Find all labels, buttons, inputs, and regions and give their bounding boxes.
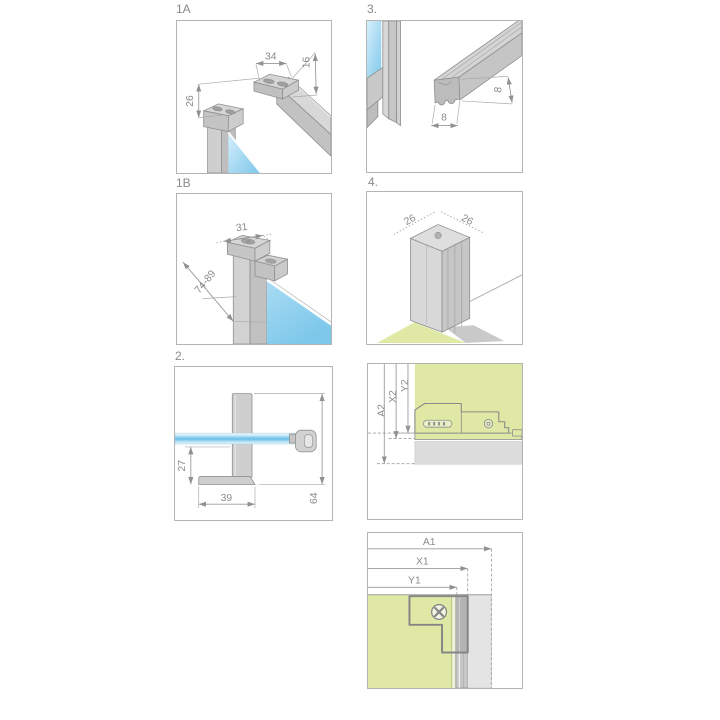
glass-bar [175,433,309,444]
diagram-wall-measure-top: A2 X2 Y2 [368,364,522,519]
dim-x1-label: X1 [416,557,429,568]
dim-side-b-label: 26 [459,213,475,228]
dim-bar-width-label: 34 [265,51,277,62]
screw-icon [484,419,492,427]
dim-profile-width-label: 8 [441,113,447,124]
dim-wall-offset-label: 26 [185,95,196,107]
panel-wall-profile-plan: A1 X1 Y1 [367,532,523,689]
panel-4: 26 26 [366,191,523,345]
glass-panel [267,277,331,344]
dim-x2-label: X2 [388,390,399,403]
glass-edge-band [468,595,492,688]
rail-end-tab [513,430,522,436]
glass-clamp-assembly [204,104,261,173]
dim-clamp-width-label: 31 [235,222,248,235]
panel-1b: 31 74-89 [176,193,332,345]
dim-profile-height-label: 8 [493,86,505,93]
bracket-foot [199,477,255,485]
panel-3-label: 3. [367,2,377,16]
dim-foot-offset-label: 27 [177,460,188,472]
diagram-seal-profile: 8 8 [367,21,522,172]
panel-1b-label: 1B [176,176,191,190]
panel-3: 8 8 [366,20,523,173]
diagram-support-bar: 34 16 26 [177,21,331,173]
panel-wall-profile-top: A2 X2 Y2 [367,363,523,520]
dim-a1-label: A1 [423,537,436,548]
diagram-corner-profile: 26 26 [367,192,522,344]
corner-profile [410,225,469,334]
dim-adjust-range-label: 74-89 [193,268,219,296]
panel-1a: 34 16 26 [176,20,332,174]
profile-end-face [434,77,460,105]
diagram-support-bracket: 27 39 64 [175,367,332,520]
dim-y1-label: Y1 [408,575,421,586]
profile-rail [415,433,522,439]
diagram-wall-measure-plan: A1 X1 Y1 [368,533,522,688]
tray-edge [415,442,522,465]
panel-2-label: 2. [175,349,185,363]
panel-1a-label: 1A [176,2,191,16]
dim-bracket-height-label: 64 [309,492,320,504]
seal-profile-bar [434,21,522,105]
adjustment-slot [423,420,452,427]
instruction-sheet: 1A 3. 1B 4. 2. [0,0,720,720]
dim-y2-label: Y2 [400,379,411,392]
panel-4-label: 4. [368,175,378,189]
dim-side-a-label: 26 [403,213,419,228]
lower-clamp [255,255,288,281]
dim-foot-length-label: 39 [221,493,233,504]
dim-bar-depth-label: 16 [301,56,312,68]
panel-2: 27 39 64 [174,366,333,521]
diagram-glass-clamp: 31 74-89 [177,194,331,344]
wall-profile-with-glass [367,21,401,128]
glass-line [470,275,522,302]
dim-a2-label: A2 [376,404,387,417]
dimensions: A2 X2 Y2 [376,364,414,464]
